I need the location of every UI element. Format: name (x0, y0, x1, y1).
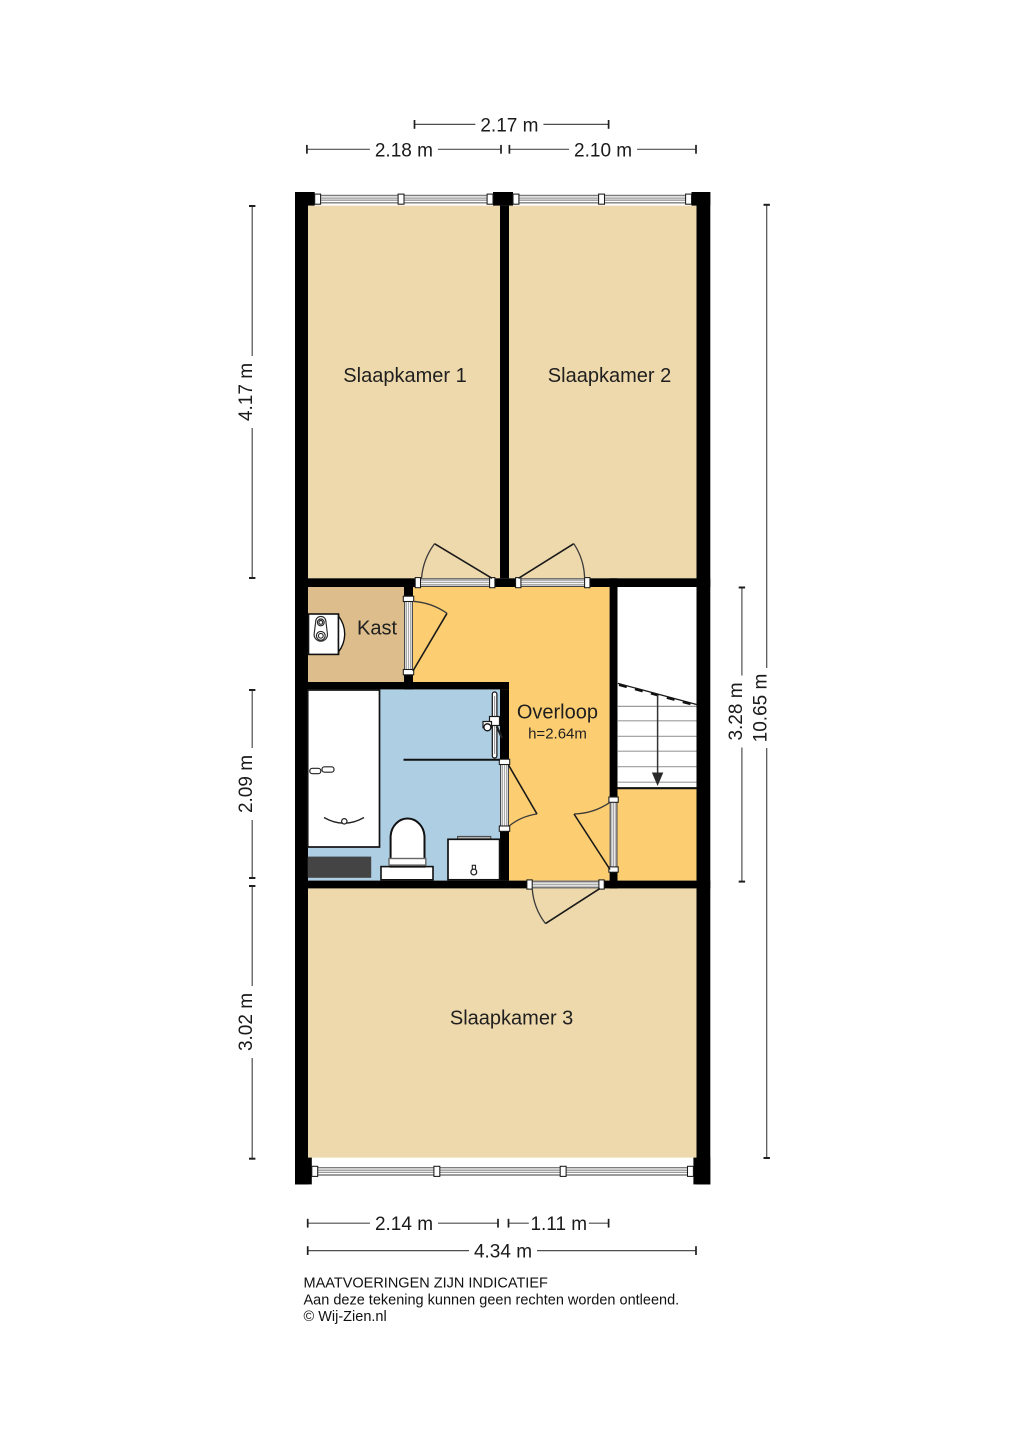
svg-text:h=2.64m: h=2.64m (528, 725, 587, 742)
svg-text:4.34 m: 4.34 m (474, 1242, 532, 1263)
svg-text:2.17 m: 2.17 m (480, 115, 538, 136)
svg-text:3.28 m: 3.28 m (726, 682, 747, 740)
svg-text:Slaapkamer 3: Slaapkamer 3 (450, 1007, 573, 1029)
svg-text:4.17 m: 4.17 m (236, 363, 257, 421)
svg-text:2.18 m: 2.18 m (375, 140, 433, 161)
svg-text:Slaapkamer 2: Slaapkamer 2 (548, 365, 671, 387)
svg-text:Slaapkamer 1: Slaapkamer 1 (343, 365, 466, 387)
svg-text:10.65 m: 10.65 m (751, 674, 772, 743)
svg-text:2.09 m: 2.09 m (236, 755, 257, 813)
svg-text:Kast: Kast (357, 618, 397, 640)
svg-text:2.10 m: 2.10 m (574, 140, 632, 161)
svg-text:© Wij-Zien.nl: © Wij-Zien.nl (304, 1309, 387, 1325)
svg-text:1.11 m: 1.11 m (530, 1214, 587, 1235)
svg-text:2.14 m: 2.14 m (375, 1214, 433, 1235)
svg-text:3.02 m: 3.02 m (236, 993, 257, 1051)
svg-text:Overloop: Overloop (517, 702, 598, 724)
svg-text:MAATVOERINGEN ZIJN INDICATIEF: MAATVOERINGEN ZIJN INDICATIEF (304, 1276, 549, 1292)
svg-text:Aan deze tekening kunnen geen: Aan deze tekening kunnen geen rechten wo… (304, 1293, 680, 1309)
